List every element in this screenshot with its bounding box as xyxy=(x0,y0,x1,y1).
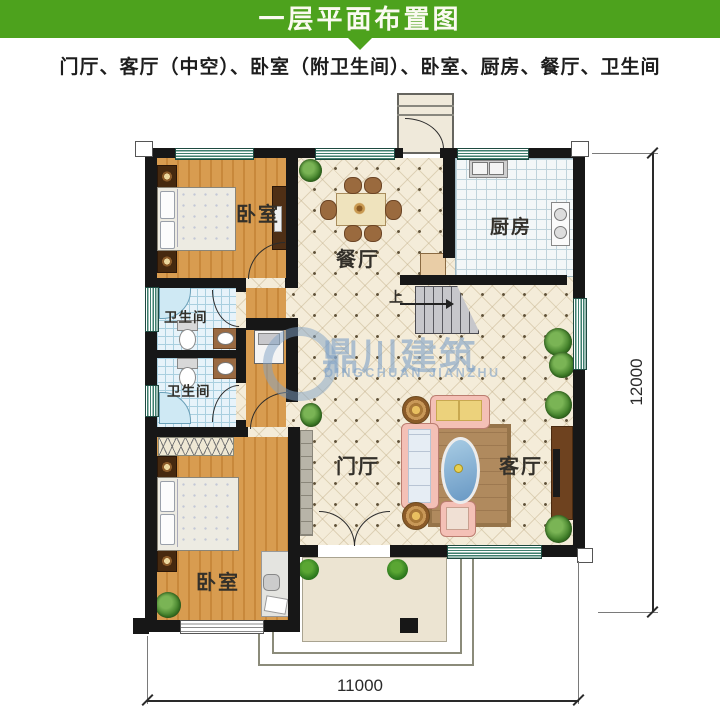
porch-column xyxy=(400,618,418,633)
window xyxy=(145,385,159,417)
wall-segment xyxy=(145,278,245,288)
porch-step-line xyxy=(258,632,260,666)
room-label-kitchen: 厨房 xyxy=(490,212,532,239)
dim-line-right xyxy=(652,153,654,612)
stove-burner xyxy=(554,208,567,221)
room-label-foyer: 门厅 xyxy=(336,450,380,479)
dim-extension-line xyxy=(147,636,148,704)
sofa-cushion xyxy=(436,400,459,421)
potted-plant xyxy=(300,403,322,427)
dim-line-bottom xyxy=(147,700,579,702)
nightstand xyxy=(157,165,177,188)
dining-chair xyxy=(364,177,382,194)
window xyxy=(457,148,529,160)
corner-column xyxy=(133,618,149,634)
potted-plant xyxy=(545,515,572,543)
dining-chair xyxy=(320,200,337,220)
duvet xyxy=(177,479,236,547)
tv-screen xyxy=(553,449,560,497)
back-entry-step-line xyxy=(397,114,454,116)
wardrobe xyxy=(158,437,234,456)
floorplan-page: 一层平面布置图 门厅、客厅（中空）、卧室（附卫生间）、卧室、厨房、餐厅、卫生间 xyxy=(0,0,720,721)
room-label-living: 客厅 xyxy=(499,450,543,479)
vanity-basin xyxy=(217,332,234,345)
corner-marker xyxy=(571,141,589,157)
porch-step-line xyxy=(460,557,462,654)
wall-segment xyxy=(443,158,455,258)
wall-segment xyxy=(145,350,236,358)
potted-plant xyxy=(155,592,181,618)
potted-plant xyxy=(545,391,572,419)
hallway-floor-north xyxy=(246,288,286,318)
porch-bush xyxy=(298,559,319,580)
wall-segment xyxy=(145,427,248,437)
dining-chair xyxy=(344,177,362,194)
wall-segment xyxy=(236,328,246,383)
dining-chair xyxy=(385,200,402,220)
dim-label-depth: 12000 xyxy=(627,342,647,422)
wall-segment xyxy=(236,420,246,437)
sink-basin xyxy=(472,162,488,175)
sofa-cushion xyxy=(408,429,431,503)
potted-plant xyxy=(299,159,322,182)
window xyxy=(447,545,542,559)
watermark-name-en: DINGCHUAN JIANZHU xyxy=(324,366,501,380)
nightstand xyxy=(157,456,177,478)
wall-segment xyxy=(286,148,298,288)
sofa-cushion xyxy=(459,400,482,421)
dining-table-centerpiece xyxy=(353,202,366,215)
room-label-bath-lower: 卫生间 xyxy=(167,380,211,400)
entry-porch xyxy=(302,557,447,642)
stove-burner xyxy=(554,226,567,239)
corner-marker xyxy=(577,548,593,563)
potted-plant xyxy=(549,352,575,378)
corner-marker xyxy=(135,141,153,157)
room-label-bedroom-top: 卧室 xyxy=(236,198,280,227)
back-entry-step-line xyxy=(397,105,454,107)
porch-step-line xyxy=(272,632,274,654)
coffee-table-dot xyxy=(454,464,463,473)
pillow xyxy=(160,191,175,219)
dim-label-width: 11000 xyxy=(260,676,460,696)
side-table xyxy=(402,396,430,424)
pillow xyxy=(160,514,175,545)
wall-segment xyxy=(288,430,300,632)
shoe-cabinet xyxy=(300,430,313,536)
dining-chair xyxy=(364,225,382,242)
porch-bush xyxy=(387,559,408,580)
wall-segment xyxy=(400,275,567,285)
page-title: 一层平面布置图 xyxy=(0,0,720,38)
room-list-subtitle: 门厅、客厅（中空）、卧室（附卫生间）、卧室、厨房、餐厅、卫生间 xyxy=(0,52,720,79)
porch-step-line xyxy=(258,664,474,666)
nightstand xyxy=(157,550,177,572)
porch-step-line xyxy=(272,652,462,654)
window xyxy=(180,620,264,634)
room-label-bath-upper: 卫生间 xyxy=(164,306,208,326)
side-table xyxy=(402,502,430,530)
dim-extension-line xyxy=(592,153,658,154)
wall-segment xyxy=(285,278,298,288)
header-notch xyxy=(348,38,372,50)
duvet xyxy=(177,189,234,247)
room-label-dining: 餐厅 xyxy=(336,243,380,272)
stairs-arrow-head xyxy=(446,299,454,309)
dining-chair xyxy=(344,225,362,242)
toilet-bowl xyxy=(179,329,196,350)
dim-extension-line xyxy=(578,561,579,704)
pillow xyxy=(160,481,175,512)
wall-segment xyxy=(300,545,318,557)
sink-basin xyxy=(489,162,504,175)
porch-step-line xyxy=(472,557,474,666)
window xyxy=(145,287,159,332)
vanity-basin xyxy=(217,362,234,375)
nightstand xyxy=(157,250,177,273)
header-bar: 一层平面布置图 xyxy=(0,0,720,38)
desk-chair xyxy=(263,574,280,591)
armchair-cushion xyxy=(446,507,469,530)
room-label-bedroom-bottom: 卧室 xyxy=(196,566,240,595)
window xyxy=(175,148,254,160)
pillow xyxy=(160,221,175,249)
stairs-arrow-line xyxy=(400,303,448,305)
window xyxy=(573,298,587,370)
window xyxy=(315,148,395,160)
